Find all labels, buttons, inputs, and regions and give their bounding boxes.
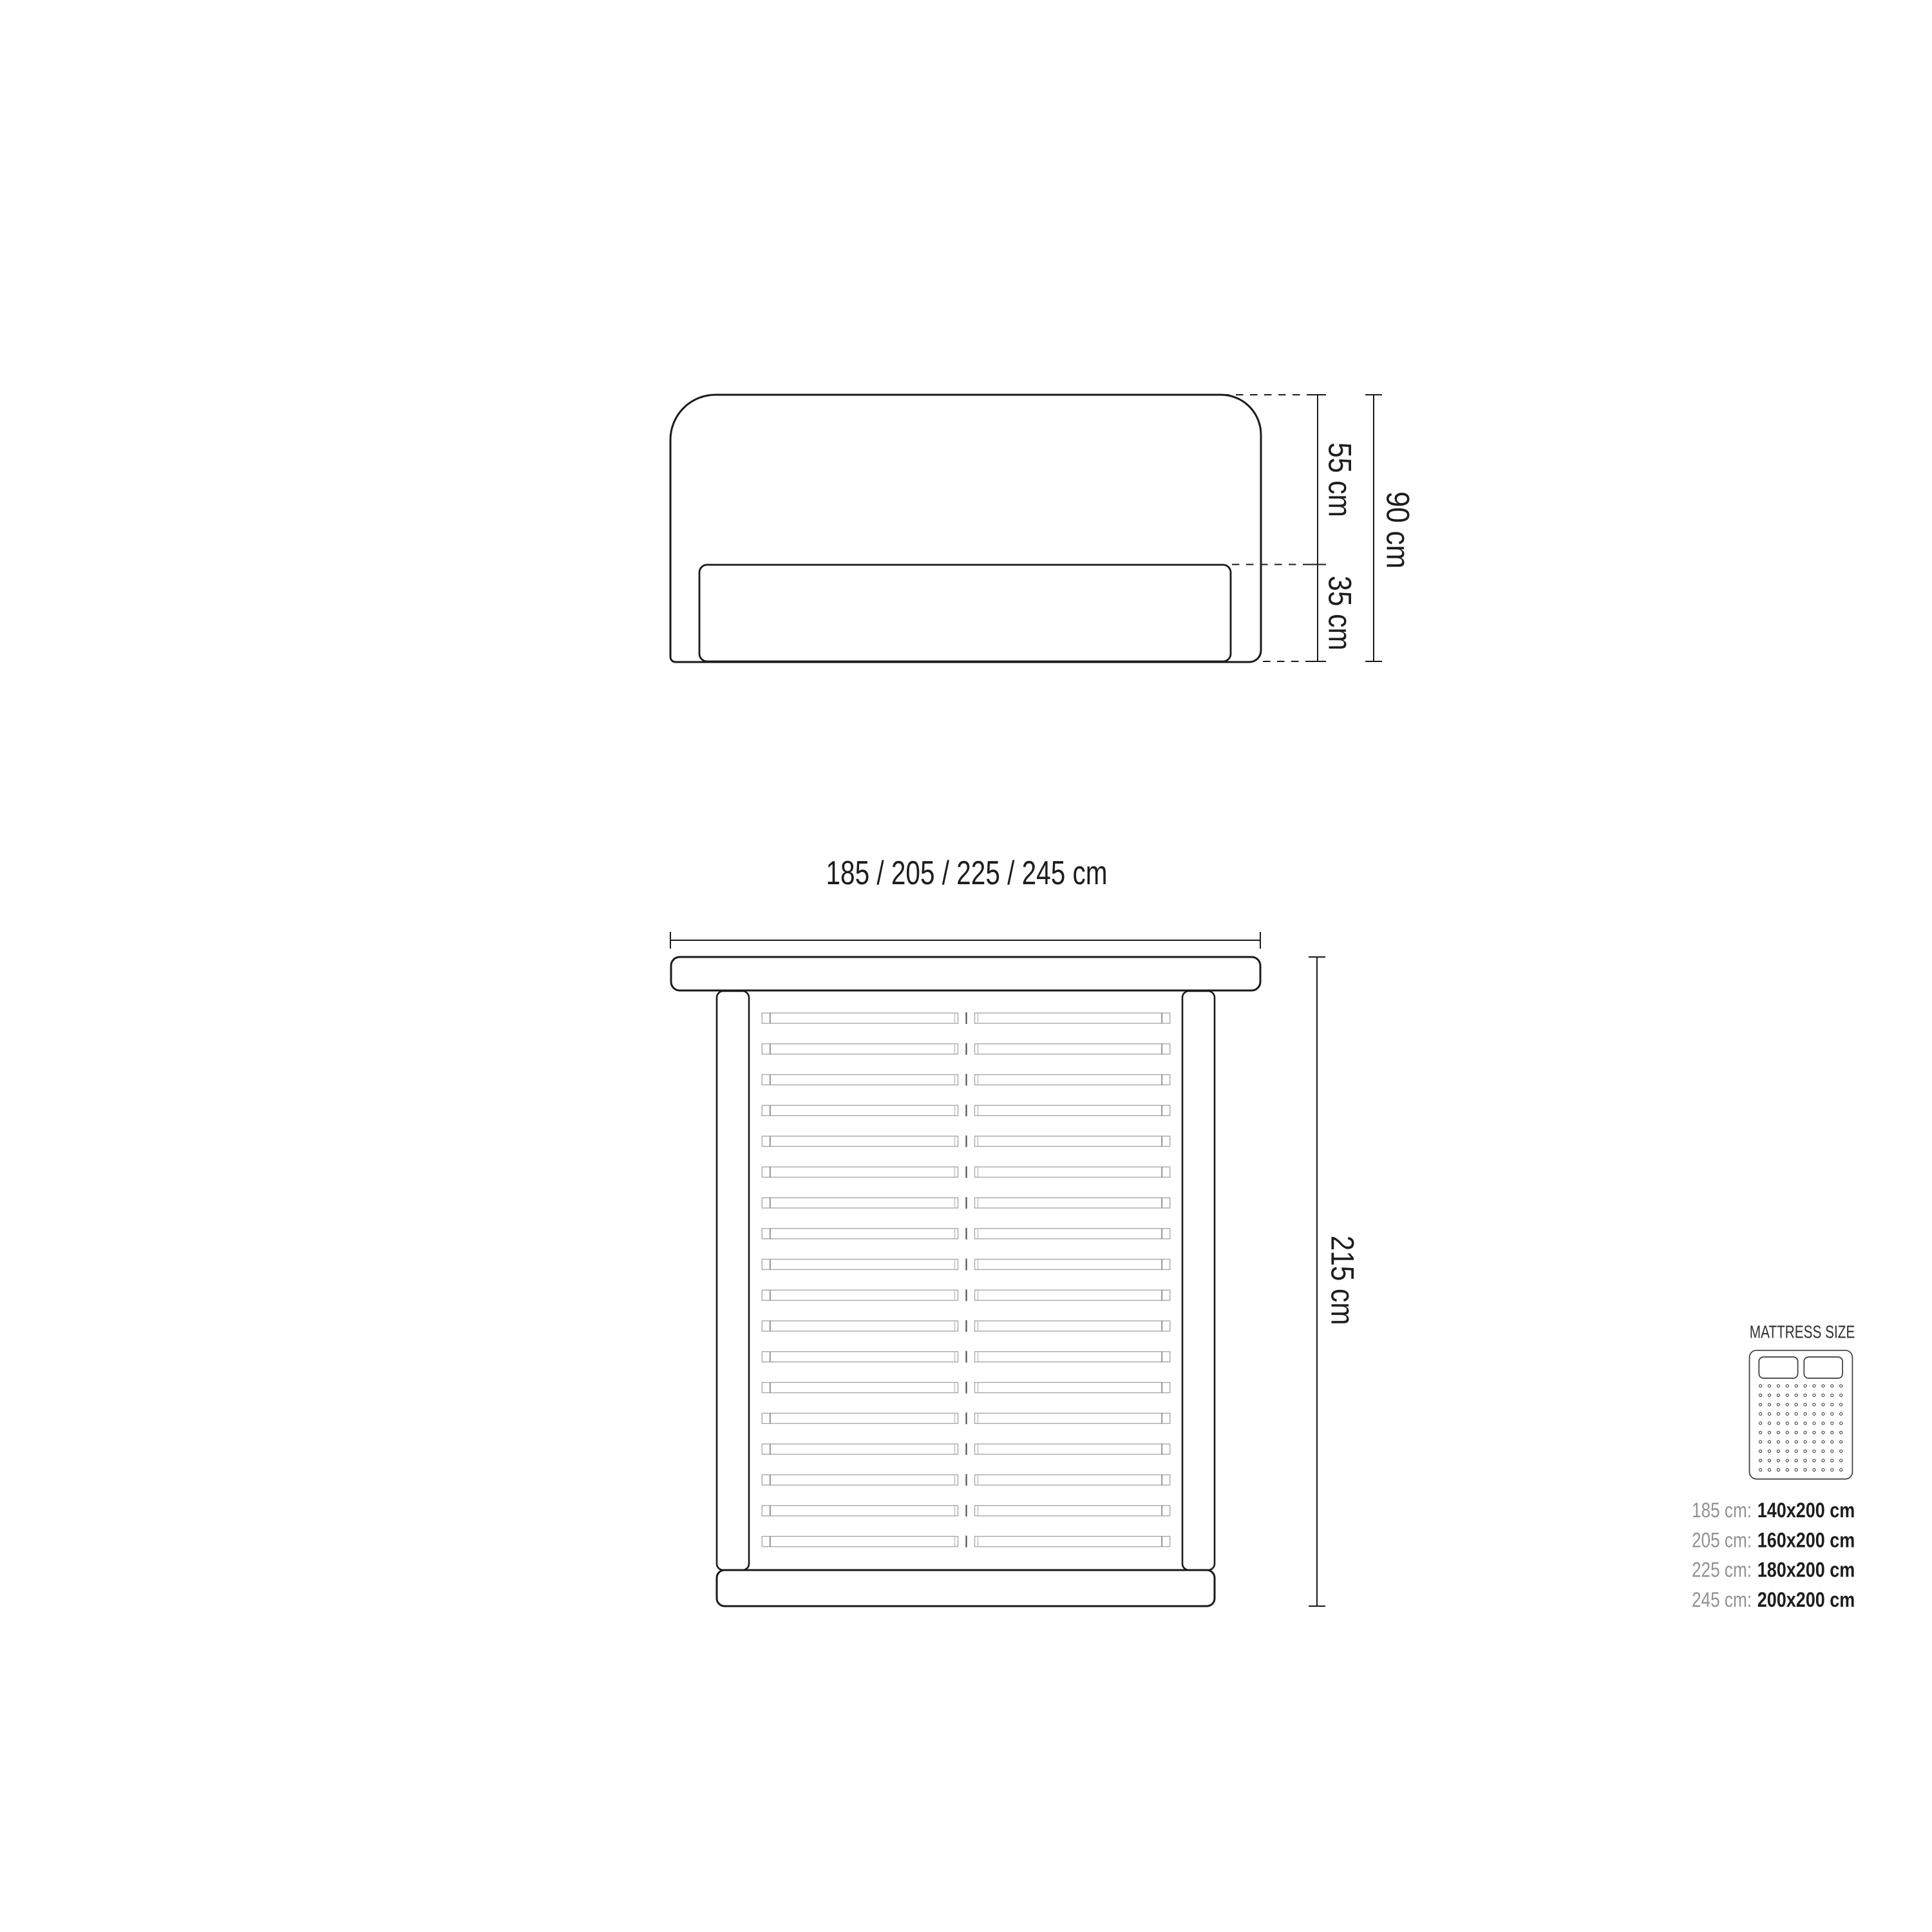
svg-text:185 cm:: 185 cm: xyxy=(1692,1499,1752,1522)
svg-text:140x200 cm: 140x200 cm xyxy=(1757,1499,1855,1522)
svg-text:215 cm: 215 cm xyxy=(1325,1236,1361,1325)
svg-text:55 cm: 55 cm xyxy=(1322,442,1359,517)
svg-text:180x200 cm: 180x200 cm xyxy=(1757,1558,1855,1582)
svg-text:225 cm:: 225 cm: xyxy=(1692,1558,1752,1582)
svg-text:245 cm:: 245 cm: xyxy=(1692,1588,1752,1611)
svg-text:200x200 cm: 200x200 cm xyxy=(1757,1588,1855,1611)
svg-text:35 cm: 35 cm xyxy=(1322,576,1359,650)
svg-text:160x200 cm: 160x200 cm xyxy=(1757,1529,1855,1552)
svg-text:205 cm:: 205 cm: xyxy=(1692,1529,1752,1552)
svg-text:185 / 205 / 225 / 245 cm: 185 / 205 / 225 / 245 cm xyxy=(826,855,1108,892)
svg-text:MATTRESS SIZE: MATTRESS SIZE xyxy=(1750,1322,1855,1342)
svg-text:90 cm: 90 cm xyxy=(1380,491,1417,569)
